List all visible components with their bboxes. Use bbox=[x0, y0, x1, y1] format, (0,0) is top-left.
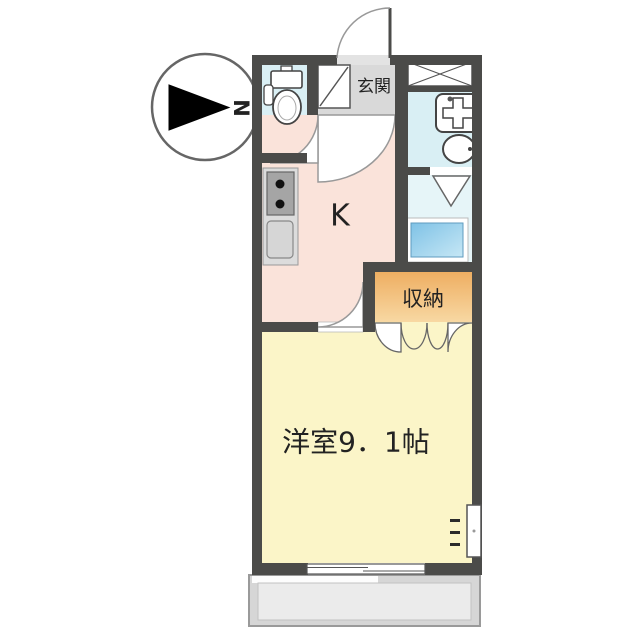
wall-segment bbox=[363, 262, 375, 332]
floor-plan: N bbox=[0, 0, 640, 640]
kitchen-sink-icon bbox=[267, 221, 293, 258]
entrance-gap-floor bbox=[337, 55, 390, 65]
kitchen-unit bbox=[263, 168, 298, 265]
main-room-label: 洋室9．1帖 bbox=[282, 426, 430, 459]
wall-segment bbox=[408, 86, 472, 92]
wall-segment bbox=[252, 65, 262, 575]
crossed-box-icon bbox=[408, 62, 472, 86]
washing-machine-pan-icon bbox=[406, 218, 468, 262]
compass-north-label: N bbox=[229, 99, 253, 117]
vent-dash bbox=[450, 519, 460, 522]
wall-segment bbox=[307, 65, 318, 115]
stove-burner bbox=[276, 180, 285, 189]
wall-segment bbox=[425, 563, 472, 575]
kitchen-label: K bbox=[330, 199, 351, 234]
washer-pan bbox=[411, 223, 463, 257]
toilet-seat bbox=[278, 96, 296, 120]
balcony-inner bbox=[258, 583, 471, 620]
wall-segment bbox=[252, 55, 337, 65]
balcony bbox=[249, 575, 480, 626]
wall-segment bbox=[252, 322, 318, 332]
kitchen-floor-lower bbox=[262, 262, 363, 322]
two-burner-stove-icon bbox=[267, 172, 294, 215]
stove-burner bbox=[276, 200, 285, 209]
wall-segment bbox=[363, 262, 482, 272]
toilet-tank bbox=[271, 71, 302, 88]
balcony-window-track bbox=[252, 576, 378, 583]
floor-plan-drawing: N bbox=[0, 0, 640, 640]
entrance-door-swing-icon bbox=[337, 8, 390, 58]
compass: N bbox=[152, 54, 258, 160]
wall-segment bbox=[472, 65, 482, 575]
wall-segment bbox=[408, 167, 430, 175]
wall-segment bbox=[252, 153, 307, 163]
wall-segment bbox=[262, 563, 308, 575]
shoe-cabinet-diagonal-icon bbox=[318, 65, 350, 108]
bathtub-faucet-dot bbox=[448, 97, 453, 102]
wall-segment bbox=[395, 65, 408, 262]
window-latch-dot bbox=[473, 530, 476, 533]
vent-dash bbox=[450, 531, 460, 534]
basin-tap-dot bbox=[468, 147, 472, 151]
vent-dash bbox=[450, 543, 460, 546]
entrance-label: 玄関 bbox=[357, 77, 391, 97]
sliding-window-icon bbox=[307, 564, 425, 574]
closet-label: 収納 bbox=[402, 287, 444, 311]
wall-segment bbox=[390, 55, 482, 65]
toilet-armrest bbox=[264, 85, 273, 105]
entrance-door-arc bbox=[337, 8, 390, 58]
